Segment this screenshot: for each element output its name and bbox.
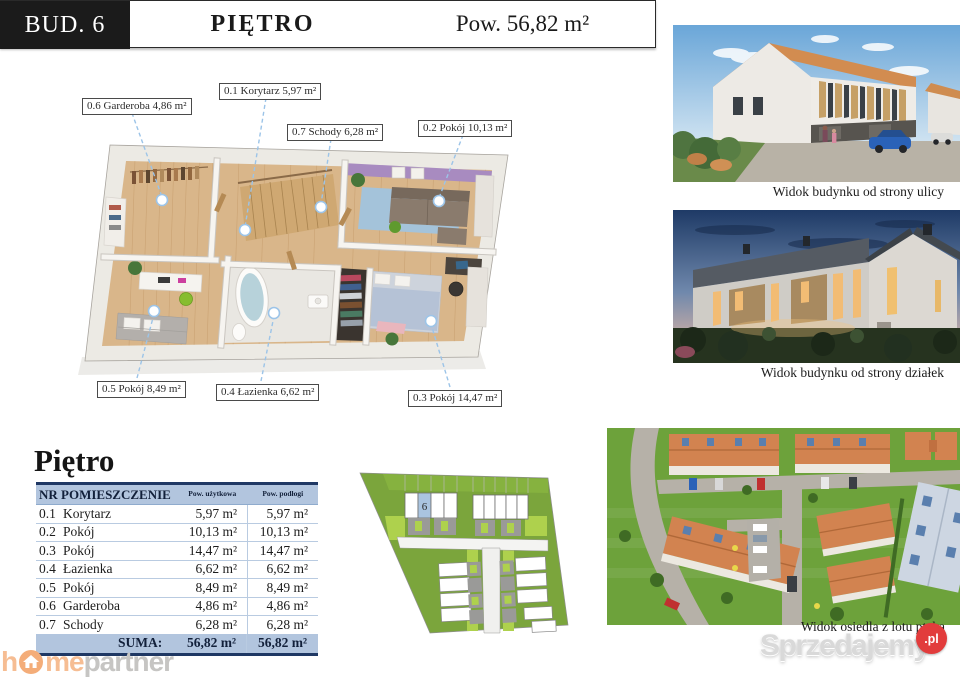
row-usable: 14,47 m² — [176, 543, 247, 559]
row-usable: 5,97 m² — [176, 506, 247, 522]
header-bar: BUD. 6 PIĘTRO Pow. 56,82 m² — [0, 0, 656, 48]
sprzedajemy-watermark: Sprzedajemy .pl — [760, 621, 960, 665]
floor-name: PIĘTRO — [130, 1, 395, 47]
row-name: Korytarz — [63, 506, 176, 522]
watermark-text: Sprzedajemy — [760, 629, 929, 663]
room-label-pokoj-05: 0.5 Pokój 8,49 m² — [97, 381, 186, 398]
table-header-row: NR POMIESZCZENIE Pow. użytkowa Pow. podł… — [36, 485, 318, 505]
logo-me: me — [45, 646, 83, 678]
total-area: Pow. 56,82 m² — [400, 1, 645, 47]
row-nr: 0.4 — [36, 561, 63, 577]
sum-floor: 56,82 m² — [246, 634, 317, 654]
room-label-pokoj-02: 0.2 Pokój 10,13 m² — [418, 120, 512, 137]
row-nr: 0.6 — [36, 598, 63, 614]
plots-view-caption: Widok budynku od strony działek — [673, 365, 960, 381]
watermark-pl-badge: .pl — [916, 623, 947, 654]
flyer-page: BUD. 6 PIĘTRO Pow. 56,82 m² — [0, 0, 960, 679]
table-row: 0.6 Garderoba 4,86 m² 4,86 m² — [36, 598, 318, 617]
col-header-room: NR POMIESZCZENIE — [36, 487, 177, 503]
row-name: Pokój — [63, 543, 176, 559]
table-row: 0.3 Pokój 14,47 m² 14,47 m² — [36, 542, 318, 561]
room-label-garderoba: 0.6 Garderoba 4,86 m² — [82, 98, 192, 115]
row-nr: 0.2 — [36, 524, 63, 540]
row-usable: 10,13 m² — [176, 524, 247, 540]
col-header-usable: Pow. użytkowa — [177, 490, 248, 498]
street-view-photo — [673, 25, 960, 182]
site-plan-map: 6 — [355, 460, 575, 640]
row-name: Garderoba — [63, 598, 176, 614]
row-name: Łazienka — [63, 561, 176, 577]
row-name: Pokój — [63, 524, 176, 540]
logo-partner: partner — [84, 646, 173, 678]
row-name: Pokój — [63, 580, 176, 596]
row-usable: 8,49 m² — [176, 580, 247, 596]
row-nr: 0.7 — [36, 617, 63, 633]
row-floor: 4,86 m² — [247, 598, 318, 616]
site-plan-unit-number: 6 — [422, 501, 428, 513]
table-row: 0.1 Korytarz 5,97 m² 5,97 m² — [36, 505, 318, 524]
row-floor: 8,49 m² — [247, 579, 318, 597]
homepartner-logo: h me partner — [1, 646, 173, 678]
street-view-caption: Widok budynku od strony ulicy — [673, 184, 960, 200]
logo-h: h — [1, 646, 17, 678]
row-name: Schody — [63, 617, 176, 633]
row-nr: 0.5 — [36, 580, 63, 596]
row-floor: 14,47 m² — [247, 542, 318, 560]
row-usable: 4,86 m² — [176, 598, 247, 614]
table-row: 0.5 Pokój 8,49 m² 8,49 m² — [36, 579, 318, 598]
building-number: BUD. 6 — [0, 1, 130, 49]
room-label-schody: 0.7 Schody 6,28 m² — [287, 124, 383, 141]
table-row: 0.4 Łazienka 6,62 m² 6,62 m² — [36, 561, 318, 580]
table-row: 0.2 Pokój 10,13 m² 10,13 m² — [36, 524, 318, 543]
sum-usable: 56,82 m² — [175, 635, 246, 651]
row-floor: 5,97 m² — [247, 505, 318, 523]
row-usable: 6,28 m² — [176, 617, 247, 633]
room-label-pokoj-03: 0.3 Pokój 14,47 m² — [408, 390, 502, 407]
aerial-view-photo — [607, 428, 960, 625]
row-nr: 0.1 — [36, 506, 63, 522]
row-usable: 6,62 m² — [176, 561, 247, 577]
plots-view-photo — [673, 210, 960, 363]
row-floor: 6,28 m² — [247, 616, 318, 634]
room-area-table: NR POMIESZCZENIE Pow. użytkowa Pow. podł… — [36, 482, 318, 656]
table-row: 0.7 Schody 6,28 m² 6,28 m² — [36, 616, 318, 634]
room-label-korytarz: 0.1 Korytarz 5,97 m² — [219, 83, 321, 100]
row-floor: 10,13 m² — [247, 524, 318, 542]
home-icon — [18, 649, 44, 675]
row-floor: 6,62 m² — [247, 561, 318, 579]
col-header-floor: Pow. podłogi — [248, 490, 319, 498]
row-nr: 0.3 — [36, 543, 63, 559]
table-title: Piętro — [34, 443, 114, 479]
room-label-lazienka: 0.4 Łazienka 6,62 m² — [216, 384, 319, 401]
